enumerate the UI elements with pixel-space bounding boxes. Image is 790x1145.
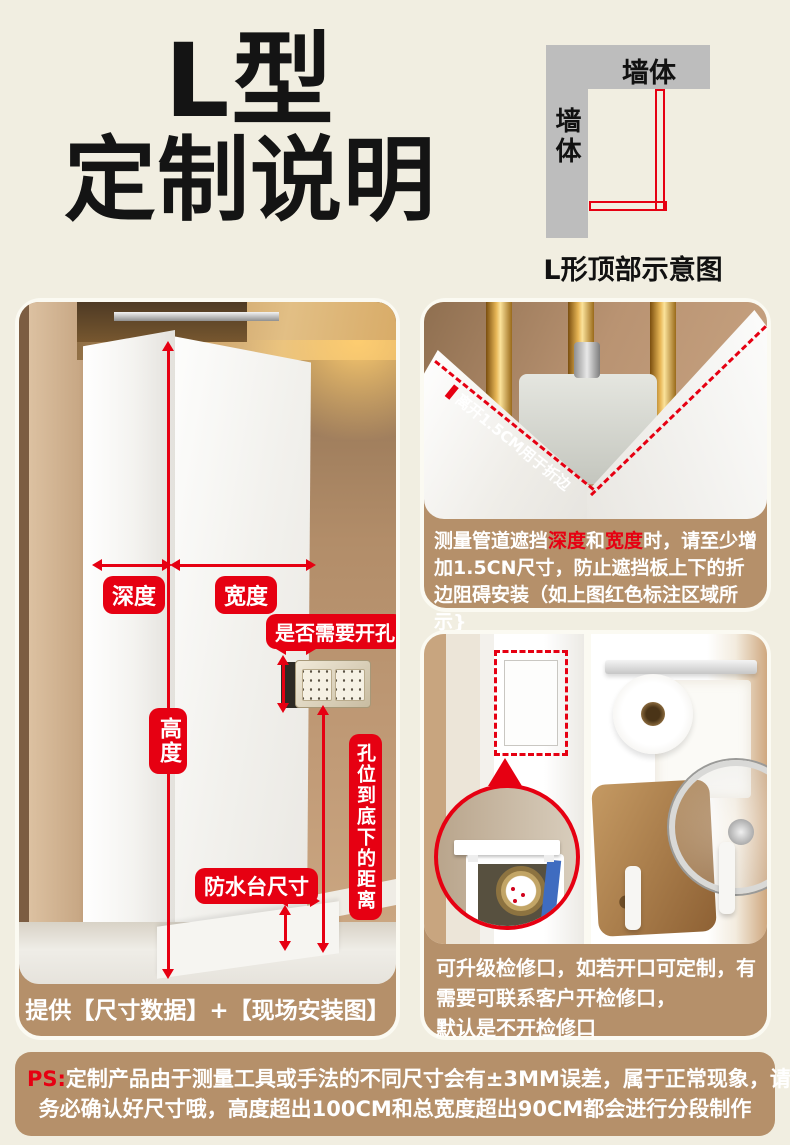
- open-panel-frame: [466, 854, 564, 930]
- fold-caption-width: 宽度: [605, 530, 643, 552]
- water-meter: [496, 866, 546, 916]
- ps-line1: PS:定制产品由于测量工具或手法的不同尺寸会有±3MM误差，属于正常现象，请您: [27, 1064, 763, 1094]
- magnifier-pointer-icon: [488, 758, 522, 786]
- plinth-depth-arrow: [287, 900, 311, 903]
- fold-caption-seg3: 和: [586, 530, 605, 552]
- socket-module: [302, 669, 332, 701]
- metal-strip: [114, 312, 279, 321]
- access-card-caption: 可升级检修口，如若开口可定制，有 需要可联系客户开检修口， 默认是不开检修口: [424, 944, 767, 1043]
- wall-hook: [719, 842, 735, 914]
- hole-depth-arrow: [285, 648, 307, 651]
- access-caption-line2: 需要可联系客户开检修口，: [436, 983, 759, 1013]
- open-panel-flap: [454, 840, 560, 855]
- page-title: L型 定制说明: [20, 30, 480, 228]
- ps-line1-text: 定制产品由于测量工具或手法的不同尺寸会有±3MM误差，属于正常现象，请您: [66, 1067, 790, 1091]
- dimension-card: 深度 宽度 是否需要开孔 高度 孔位到底下的距离 防水台尺寸 提供【尺寸数据】+…: [15, 298, 400, 1040]
- depth-label: 深度: [103, 576, 165, 614]
- access-panel-photo: [424, 634, 584, 944]
- width-arrow: [179, 564, 307, 567]
- fold-card: 离开1.5CM用于折边 测量管道遮挡深度和宽度时，请至少增加1.5CN尺寸，防止…: [420, 298, 771, 612]
- height-arrow: [167, 350, 170, 970]
- diagram-wall-side-label: 墙体: [551, 107, 585, 167]
- hole-height-arrow: [282, 664, 285, 704]
- wall-hook: [625, 866, 641, 930]
- title-line-2: 定制说明: [20, 134, 480, 228]
- wall-edge: [19, 302, 29, 984]
- plinth-height-arrow: [284, 914, 287, 942]
- cover-side-face: [83, 330, 175, 980]
- ps-note: PS:定制产品由于测量工具或手法的不同尺寸会有±3MM误差，属于正常现象，请您 …: [15, 1052, 775, 1136]
- ps-line2: 务必确认好尺寸哦，高度超出100CM和总宽度超出90CM都会进行分段制作: [27, 1094, 763, 1124]
- page: L型 定制说明 墙体 墙体 L形顶部示意图: [0, 0, 790, 1145]
- paper-roll-core: [641, 702, 665, 726]
- photo-divider: [584, 634, 591, 944]
- depth-arrow: [101, 564, 163, 567]
- hole-distance-arrow: [322, 714, 325, 944]
- magnifier-circle: [434, 784, 580, 930]
- socket-module: [335, 669, 365, 701]
- fold-card-caption: 测量管道遮挡深度和宽度时，请至少增加1.5CN尺寸，防止遮挡板上下的折边阻碍安装…: [424, 519, 767, 636]
- diagram-red-panel-horizontal: [589, 201, 667, 211]
- power-socket: [295, 660, 371, 708]
- height-label: 高度: [149, 708, 187, 774]
- access-caption-line3: 默认是不开检修口: [436, 1013, 759, 1043]
- accessories-photo: [591, 634, 767, 944]
- l-shape-top-diagram: 墙体 墙体 L形顶部示意图: [546, 45, 776, 285]
- title-line-1: L型: [20, 30, 480, 134]
- access-photo: [424, 634, 767, 944]
- diagram-caption: L形顶部示意图: [528, 248, 738, 287]
- diagram-wall-top-label: 墙体: [588, 51, 710, 90]
- tile-wall: [29, 302, 91, 984]
- paper-roll: [613, 674, 693, 754]
- hole-distance-label: 孔位到底下的距离: [349, 734, 382, 920]
- dimension-card-caption: 提供【尺寸数据】+【现场安装图】: [19, 980, 396, 1036]
- fold-photo: 离开1.5CM用于折边: [424, 302, 767, 519]
- diagram-red-panel-vertical: [655, 89, 665, 211]
- waterproof-label: 防水台尺寸: [195, 868, 318, 904]
- access-caption-line1: 可升级检修口，如若开口可定制，有: [436, 953, 759, 983]
- fold-caption-seg1: 测量管道遮挡: [434, 530, 548, 552]
- access-panel-door: [504, 660, 558, 746]
- access-card: 可升级检修口，如若开口可定制，有 需要可联系客户开检修口， 默认是不开检修口: [420, 630, 771, 1040]
- dimension-photo: 深度 宽度 是否需要开孔 高度 孔位到底下的距离 防水台尺寸: [19, 302, 396, 984]
- pot-lid-knob: [728, 819, 754, 845]
- access-dashed-outline: [494, 650, 568, 756]
- fold-caption-depth: 深度: [548, 530, 586, 552]
- ps-prefix: PS:: [27, 1067, 66, 1091]
- pipe-valve: [574, 342, 600, 378]
- paper-holder-rail: [605, 660, 757, 674]
- width-label: 宽度: [215, 576, 277, 614]
